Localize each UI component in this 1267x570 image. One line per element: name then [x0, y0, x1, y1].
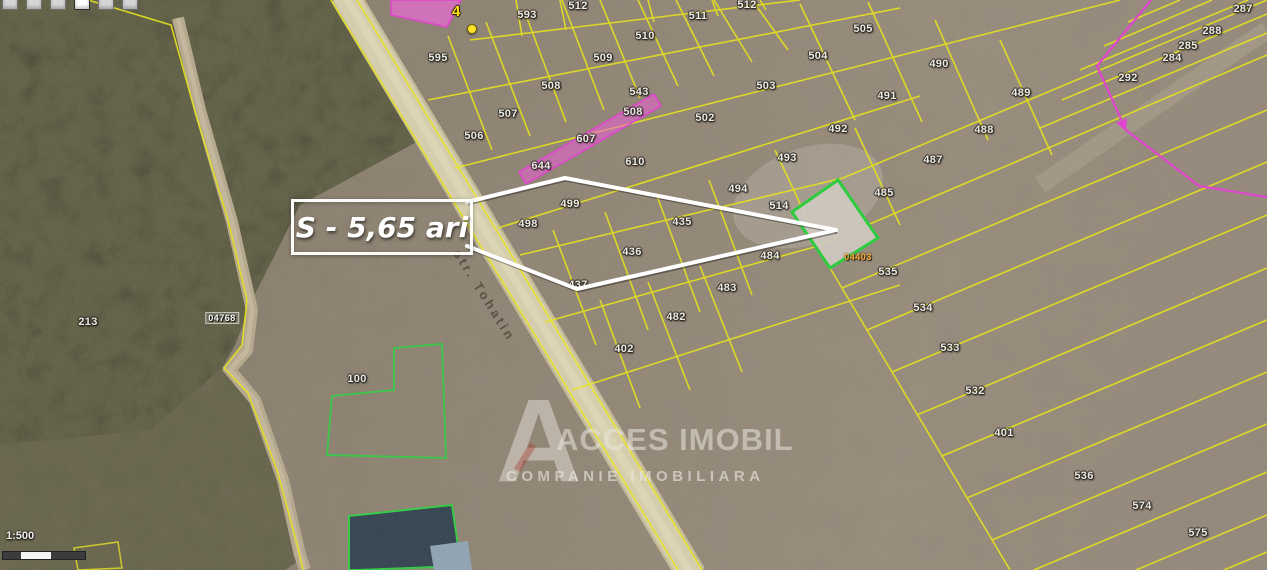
toolbar-button-1[interactable]: [2, 0, 18, 10]
map-toolbar: [2, 0, 138, 10]
toolbar-button-3[interactable]: [50, 0, 66, 10]
toolbar-button-5[interactable]: [98, 0, 114, 10]
area-annotation-arrow: [0, 0, 1267, 570]
toolbar-button-4[interactable]: [74, 0, 90, 10]
map-canvas[interactable]: 5935125115125105095955085435075065086076…: [0, 0, 1267, 570]
area-annotation-box: S - 5,65 ari: [291, 199, 473, 255]
scale-ratio-label: 1:500: [6, 530, 34, 542]
area-annotation-label: S - 5,65 ari: [296, 211, 468, 244]
scale-bar: [2, 551, 86, 560]
toolbar-button-2[interactable]: [26, 0, 42, 10]
toolbar-button-6[interactable]: [122, 0, 138, 10]
